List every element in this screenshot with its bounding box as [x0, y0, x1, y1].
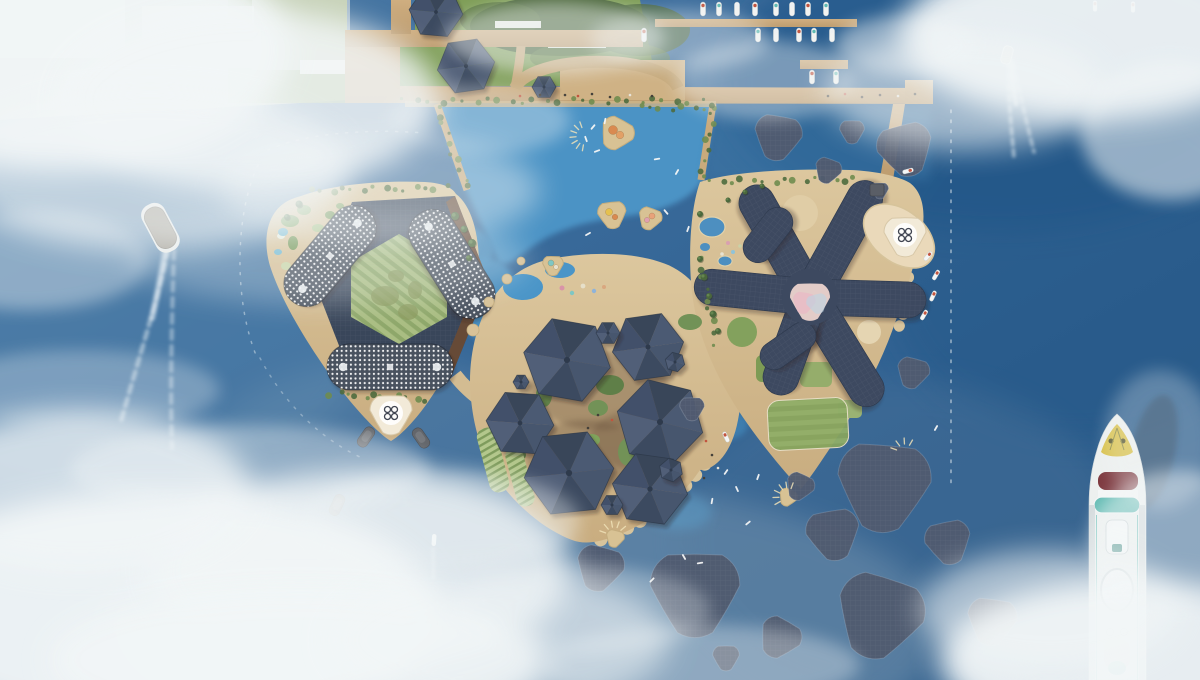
- shrub-dot: [835, 178, 839, 182]
- person-dot: [597, 414, 600, 417]
- roof-peak: [657, 419, 663, 425]
- shrub-dot: [677, 103, 684, 110]
- sailboat: [805, 2, 810, 16]
- roof-peak: [518, 421, 523, 426]
- cloud-wisp: [835, 15, 975, 75]
- shrub-dot: [708, 179, 711, 182]
- cloud-wisp: [130, 215, 530, 305]
- person-dot: [564, 94, 567, 97]
- roof-peak: [566, 470, 572, 476]
- tent-dome: [548, 260, 554, 266]
- sailboat: [734, 2, 739, 16]
- shrub-dot: [842, 178, 849, 185]
- shrub-dot: [340, 390, 345, 395]
- shrub-dot: [730, 181, 734, 185]
- person-dot: [705, 440, 708, 443]
- shrub-dot: [370, 391, 377, 398]
- sailboat: [811, 28, 816, 42]
- shrub-dot: [698, 267, 705, 274]
- shrub-dot: [850, 175, 855, 180]
- sailboat: [823, 2, 828, 16]
- pond: [718, 256, 732, 266]
- roof-peak: [674, 361, 677, 364]
- parasol-dot: [720, 252, 724, 256]
- pontoon: [484, 297, 494, 307]
- roof-peak: [670, 469, 673, 472]
- shrub-dot: [706, 288, 709, 291]
- roof-peak: [434, 10, 438, 14]
- shrub-dot: [655, 106, 661, 112]
- sailboat-bow: [790, 4, 793, 7]
- roof-peak: [645, 344, 650, 349]
- lawn-circle: [727, 317, 757, 347]
- sand-court: [857, 320, 881, 344]
- tree-highlight: [698, 212, 701, 215]
- shrub-dot: [712, 344, 715, 347]
- roof-peak: [543, 86, 546, 89]
- greenhouse-roof: [327, 344, 455, 393]
- roof-peak: [464, 64, 468, 68]
- shrub-dot: [813, 176, 816, 179]
- kayak-ray: [570, 137, 576, 138]
- greenhouse-vent: [339, 363, 347, 371]
- sailboat: [796, 28, 801, 42]
- tent-dome: [612, 214, 618, 220]
- shrub-dot: [708, 133, 712, 137]
- parasol-dot: [738, 244, 742, 248]
- shrub-dot: [760, 180, 763, 183]
- shrub-dot: [366, 396, 370, 400]
- shrub-dot: [415, 396, 422, 403]
- sailboat-bow: [753, 4, 756, 7]
- tree-highlight: [707, 294, 710, 297]
- parasol-dot: [592, 289, 596, 293]
- pond: [700, 243, 710, 251]
- roof-peak: [520, 381, 523, 384]
- shrub-dot: [325, 392, 332, 399]
- tree-highlight: [716, 329, 719, 332]
- shrub-dot: [571, 96, 576, 101]
- greenhouse-vent: [433, 363, 441, 371]
- person-dot: [651, 95, 654, 98]
- tree-highlight: [710, 311, 713, 314]
- shrub-dot: [703, 159, 706, 162]
- shrub-dot: [614, 96, 621, 103]
- shrub-dot: [347, 393, 350, 396]
- sailboat: [789, 2, 794, 16]
- green-patch: [678, 314, 702, 330]
- shrub-dot: [774, 180, 780, 186]
- tent-dome: [644, 217, 649, 222]
- greenhouse-vent: [387, 364, 393, 370]
- sailboat: [829, 28, 834, 42]
- sailboat-bow: [735, 4, 738, 7]
- shrub-dot: [736, 176, 743, 183]
- aerial-render-stage: [0, 0, 1200, 680]
- shrub-dot: [640, 103, 645, 108]
- shrub-dot: [702, 136, 709, 143]
- sports-field: [767, 397, 850, 451]
- sailboat-bow: [701, 4, 704, 7]
- parasol-dot: [602, 285, 606, 289]
- roof-peak: [564, 357, 570, 363]
- barge-hull: [870, 184, 884, 196]
- sailboat-bow: [830, 30, 833, 33]
- person-dot: [611, 419, 614, 422]
- shrub-dot: [702, 174, 706, 178]
- farm-blotch: [398, 304, 418, 320]
- shrub-dot: [648, 106, 651, 109]
- tree-highlight: [698, 257, 701, 260]
- shrub-dot: [711, 121, 717, 127]
- person-dot: [629, 94, 632, 97]
- shrub-dot: [721, 179, 727, 185]
- helipad-circle: [379, 401, 403, 425]
- shrub-dot: [698, 168, 704, 174]
- parasol-dot: [731, 250, 735, 254]
- person-dot: [591, 93, 594, 96]
- sailboat: [773, 28, 778, 42]
- shrub-dot: [589, 99, 595, 105]
- tent-dome: [609, 126, 618, 135]
- parasol-dot: [570, 291, 574, 295]
- parasol-dot: [726, 241, 730, 245]
- tent-dome: [616, 131, 624, 139]
- tree-highlight: [701, 274, 704, 277]
- shrub-dot: [624, 99, 629, 104]
- shrub-dot: [789, 177, 796, 184]
- shrub-dot: [606, 101, 610, 105]
- person-dot: [587, 427, 590, 430]
- kayak-ray: [786, 482, 787, 488]
- sailboat: [752, 2, 757, 16]
- tent-dome: [649, 213, 655, 219]
- sailboat: [773, 2, 778, 16]
- parasol-dot: [560, 286, 565, 291]
- sailboat-bow: [797, 30, 800, 33]
- sailboat-bow: [812, 30, 815, 33]
- green-patch: [588, 400, 608, 416]
- cloud-wisp: [300, 470, 580, 570]
- shrub-dot: [752, 178, 757, 183]
- shrub-dot: [659, 98, 663, 102]
- tree-highlight: [743, 190, 745, 192]
- pond: [699, 217, 725, 237]
- barge-boat: [870, 184, 884, 196]
- tree-highlight: [726, 198, 728, 200]
- roof-peak: [607, 332, 610, 335]
- shrub-dot: [422, 399, 427, 404]
- person-dot: [711, 454, 714, 457]
- person-dot: [609, 96, 612, 99]
- floating-city-aerial-render: [0, 0, 1200, 680]
- sailboat-bow: [824, 4, 827, 7]
- shrub-dot: [684, 101, 689, 106]
- person-dot: [703, 477, 706, 480]
- cloud-wisp: [390, 85, 570, 155]
- shrub-dot: [709, 112, 712, 115]
- shrub-dot: [671, 108, 675, 112]
- sailboat-bow: [806, 4, 809, 7]
- sailboat-bow: [774, 4, 777, 7]
- boardwalk-bridge: [391, 0, 411, 34]
- tent-dome: [606, 209, 613, 216]
- shrub-dot: [706, 148, 711, 153]
- tree-highlight: [760, 184, 762, 186]
- roof-peak: [647, 486, 652, 491]
- roof-peak: [611, 504, 614, 507]
- shrub-dot: [805, 179, 810, 184]
- shrub-dot: [351, 393, 357, 399]
- sailboat-bow: [774, 30, 777, 33]
- shrub-dot: [783, 177, 787, 181]
- sailboat-bow: [717, 4, 720, 7]
- shrub-dot: [581, 99, 584, 102]
- helipad-circle: [893, 223, 917, 247]
- parasol-dot: [581, 284, 586, 289]
- person-dot: [577, 95, 580, 98]
- pontoon: [467, 324, 479, 336]
- shrub-dot: [705, 306, 709, 310]
- person-dot: [717, 467, 720, 470]
- tent-dome: [554, 265, 559, 270]
